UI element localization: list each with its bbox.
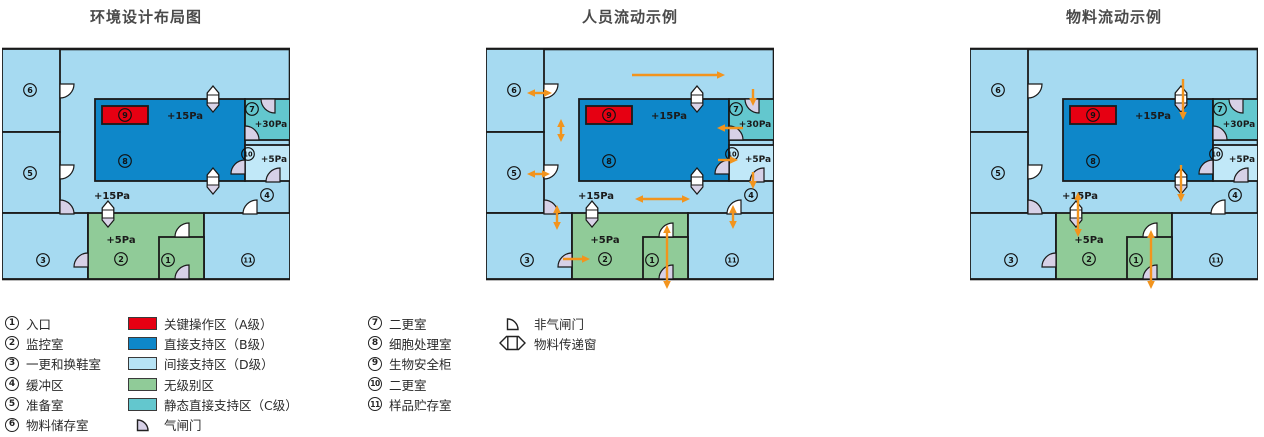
legend-item: 9生物安全柜 xyxy=(368,354,452,374)
layout-plan-diagram: 1234567891011+15Pa+30Pa+5Pa+15Pa+5Pa xyxy=(2,47,290,293)
room-number-badge: 10 xyxy=(368,377,382,391)
legend-item: 气闸门 xyxy=(128,414,298,434)
room-number: 2 xyxy=(602,255,608,264)
legend-item: 2监控室 xyxy=(5,333,101,353)
room-number: 8 xyxy=(122,157,128,166)
pressure-label: +5Pa xyxy=(745,155,771,165)
plain-door-icon xyxy=(498,316,527,331)
room-number: 5 xyxy=(27,169,33,178)
room-number-badge: 9 xyxy=(368,357,382,371)
legend-item: 物料传递窗 xyxy=(498,333,597,353)
zone-color-swatch xyxy=(128,398,157,411)
pressure-label: +5Pa xyxy=(1074,235,1103,246)
legend-item: 直接支持区（B级） xyxy=(128,333,298,353)
room-number: 6 xyxy=(995,86,1001,95)
room-11 xyxy=(204,213,290,279)
legend-item-label: 二更室 xyxy=(389,314,427,333)
pressure-label: +5Pa xyxy=(261,155,287,165)
legend-item: 4缓冲区 xyxy=(5,374,101,394)
room-number-badge: 7 xyxy=(368,316,382,330)
legend-item-label: 二更室 xyxy=(389,375,427,394)
room-number-badge: 2 xyxy=(5,336,19,350)
legend-item-label: 气闸门 xyxy=(164,415,202,434)
room-number: 7 xyxy=(1217,105,1223,114)
legend-item: 3一更和换鞋室 xyxy=(5,354,101,374)
room-number: 5 xyxy=(995,169,1001,178)
legend-item-label: 准备室 xyxy=(26,395,64,414)
legend-item: 非气闸门 xyxy=(498,313,597,333)
zone-color-swatch xyxy=(128,357,157,370)
title-material-flow: 物料流动示例 xyxy=(970,6,1258,27)
room-number-badge: 4 xyxy=(5,377,19,391)
legend-item: 7二更室 xyxy=(368,313,452,333)
room-3 xyxy=(970,213,1056,279)
pressure-label: +15Pa xyxy=(94,191,130,202)
legend-item: 1入口 xyxy=(5,313,101,333)
room-number: 10 xyxy=(243,151,253,159)
legend-item-label: 关键操作区（A级） xyxy=(164,314,273,333)
legend-item-label: 监控室 xyxy=(26,334,64,353)
room-number: 11 xyxy=(727,257,737,265)
legend-item-label: 间接支持区（D级） xyxy=(164,354,274,373)
room-number: 9 xyxy=(1090,111,1096,120)
room-number-badge: 1 xyxy=(5,316,19,330)
room-number: 11 xyxy=(1211,257,1221,265)
room-number: 9 xyxy=(606,111,612,120)
legend-item: 8细胞处理室 xyxy=(368,333,452,353)
room-number: 7 xyxy=(249,105,255,114)
pressure-label: +15Pa xyxy=(578,191,614,202)
legend-item: 10二更室 xyxy=(368,374,452,394)
legend-rooms-column-1: 1入口2监控室3一更和换鞋室4缓冲区5准备室6物料储存室 xyxy=(5,313,101,435)
zone-color-swatch xyxy=(128,378,157,391)
pressure-label: +30Pa xyxy=(255,120,288,130)
legend-item: 11样品贮存室 xyxy=(368,394,452,414)
pressure-label: +5Pa xyxy=(106,235,135,246)
room-number: 3 xyxy=(1008,256,1014,265)
legend-item-label: 直接支持区（B级） xyxy=(164,334,273,353)
room-number: 4 xyxy=(1232,191,1238,200)
pressure-label: +15Pa xyxy=(651,111,687,122)
room-number-badge: 8 xyxy=(368,336,382,350)
legend-item: 无级别区 xyxy=(128,374,298,394)
legend-item-label: 入口 xyxy=(26,314,51,333)
legend-item-label: 缓冲区 xyxy=(26,375,64,394)
legend-item-label: 非气闸门 xyxy=(534,314,584,333)
room-number-badge: 11 xyxy=(368,397,382,411)
room-number: 9 xyxy=(122,111,128,120)
room-number: 7 xyxy=(733,105,739,114)
legend-symbols-column: 非气闸门物料传递窗 xyxy=(498,313,597,354)
room-number: 5 xyxy=(511,169,517,178)
legend-item-label: 一更和换鞋室 xyxy=(26,354,101,373)
room-number: 8 xyxy=(1090,157,1096,166)
room-number: 6 xyxy=(511,86,517,95)
legend-item-label: 生物安全柜 xyxy=(389,354,452,373)
room-number: 6 xyxy=(27,86,33,95)
title-layout-plan: 环境设计布局图 xyxy=(2,6,290,27)
room-number: 3 xyxy=(524,256,530,265)
room-number-badge: 3 xyxy=(5,357,19,371)
legend-item-label: 无级别区 xyxy=(164,375,214,394)
legend-item-label: 物料储存室 xyxy=(26,415,89,434)
pressure-label: +15Pa xyxy=(1135,111,1171,122)
room-number: 10 xyxy=(1211,151,1221,159)
room-number: 1 xyxy=(1133,256,1139,265)
room-number: 4 xyxy=(264,191,270,200)
room-11 xyxy=(1172,213,1258,279)
pressure-label: +5Pa xyxy=(590,235,619,246)
room-3 xyxy=(2,213,88,279)
legend-zones-column: 关键操作区（A级）直接支持区（B级）间接支持区（D级）无级别区静态直接支持区（C… xyxy=(128,313,298,435)
legend-item: 6物料储存室 xyxy=(5,414,101,434)
material-flow-diagram: 1234567891011+15Pa+30Pa+5Pa+15Pa+5Pa xyxy=(970,47,1258,293)
room-number: 2 xyxy=(1086,255,1092,264)
flow-arrowhead xyxy=(663,281,671,289)
pressure-label: +30Pa xyxy=(739,120,772,130)
personnel-flow-diagram: 1234567891011+15Pa+30Pa+5Pa+15Pa+5Pa xyxy=(486,47,774,293)
legend-item-label: 静态直接支持区（C级） xyxy=(164,395,298,414)
room-number: 4 xyxy=(748,191,754,200)
zone-color-swatch xyxy=(128,337,157,350)
pressure-label: +30Pa xyxy=(1223,120,1256,130)
room-number: 8 xyxy=(606,157,612,166)
room-number: 2 xyxy=(118,255,124,264)
legend-item: 关键操作区（A级） xyxy=(128,313,298,333)
airlock-door-icon xyxy=(128,417,157,432)
legend-item-label: 样品贮存室 xyxy=(389,395,452,414)
pressure-label: +15Pa xyxy=(167,111,203,122)
room-number: 11 xyxy=(243,257,253,265)
legend-item-label: 物料传递窗 xyxy=(534,334,597,353)
title-personnel-flow: 人员流动示例 xyxy=(486,6,774,27)
legend-item: 5准备室 xyxy=(5,394,101,414)
room-number-badge: 6 xyxy=(5,418,19,432)
room-number-badge: 5 xyxy=(5,397,19,411)
room-number: 3 xyxy=(40,256,46,265)
pressure-label: +5Pa xyxy=(1229,155,1255,165)
room-number: 1 xyxy=(165,256,171,265)
pass-window-icon xyxy=(498,335,527,351)
legend-item-label: 细胞处理室 xyxy=(389,334,452,353)
zone-color-swatch xyxy=(128,317,157,330)
flow-arrowhead xyxy=(1147,281,1155,289)
room-number: 1 xyxy=(649,256,655,265)
legend-item: 静态直接支持区（C级） xyxy=(128,394,298,414)
legend-item: 间接支持区（D级） xyxy=(128,354,298,374)
legend-rooms-column-2: 7二更室8细胞处理室9生物安全柜10二更室11样品贮存室 xyxy=(368,313,452,414)
